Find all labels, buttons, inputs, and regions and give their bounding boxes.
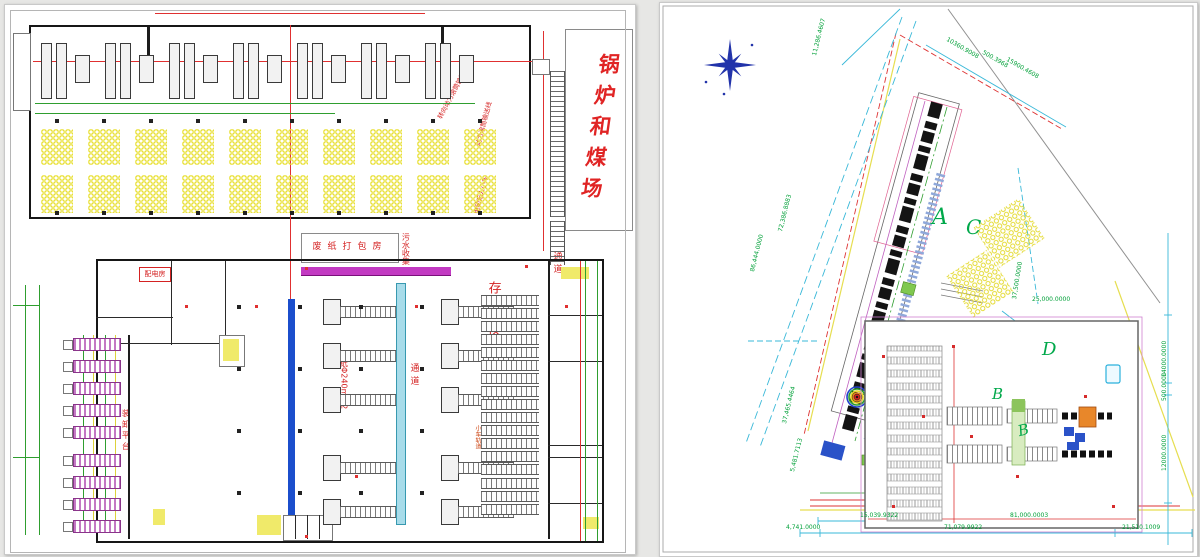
machine-bar: [297, 43, 308, 99]
paper-roll-block: [370, 175, 402, 213]
dock-bay: [73, 476, 121, 489]
dim-line: [580, 261, 581, 541]
column-dot: [298, 305, 302, 309]
red-marker: [565, 305, 568, 308]
machine-unit: [441, 455, 459, 481]
room-wall: [548, 445, 602, 446]
dim-bottom-4: 71,079.9922: [944, 525, 982, 531]
column-dot: [196, 119, 200, 123]
paper-roll-block: [370, 129, 402, 165]
dock-bay: [73, 498, 121, 511]
column-dot: [298, 367, 302, 371]
storage-track: [481, 491, 539, 502]
room-highlight: [153, 509, 165, 525]
storage-track: [481, 464, 539, 475]
storage-track: [481, 347, 539, 358]
column-dot: [237, 429, 241, 433]
machine-bar: [331, 55, 346, 83]
column-dot: [290, 119, 294, 123]
top-dim-line: [155, 13, 425, 14]
dock-leveler: [63, 384, 73, 394]
dim-line: [597, 261, 598, 541]
paper-roll-block: [276, 129, 308, 165]
storage-track: [481, 360, 539, 371]
dim-right-4: 500.0000: [1162, 372, 1168, 401]
paper-roll-block: [182, 129, 214, 165]
machine-bar: [203, 55, 218, 83]
red-marker: [525, 265, 528, 268]
dock-leveler: [63, 340, 73, 350]
machine-unit: [323, 299, 341, 325]
column-dot: [420, 305, 424, 309]
conveyor-turn: [532, 59, 550, 75]
column-dot: [243, 211, 247, 215]
site-line: [39, 285, 40, 535]
paper-roll-block: [41, 175, 73, 213]
conveyor-tail: [340, 306, 396, 318]
red-marker: [355, 475, 358, 478]
machine-bar: [459, 55, 474, 83]
column-dot: [196, 211, 200, 215]
paper-roll-block: [88, 175, 120, 213]
machine-bar: [440, 43, 451, 99]
red-marker: [255, 305, 258, 308]
red-marker: [305, 267, 308, 270]
column-dot: [243, 119, 247, 123]
paper-roll-block: [464, 129, 496, 165]
machine-unit: [441, 343, 459, 369]
conveyor-tail: [340, 394, 396, 406]
chain-conveyor: [288, 299, 295, 527]
machine-bar: [361, 43, 372, 99]
dock-leveler: [63, 362, 73, 372]
room-wall: [548, 457, 602, 458]
dock-bay: [73, 454, 121, 467]
column-dot: [102, 119, 106, 123]
machine-unit: [323, 343, 341, 369]
machine-bar: [425, 43, 436, 99]
storage-track: [481, 373, 539, 384]
dock-bay: [73, 520, 121, 533]
red-marker: [185, 305, 188, 308]
storage-track: [481, 334, 539, 345]
dock-bay: [73, 382, 121, 395]
column-dot: [102, 211, 106, 215]
machine-bar: [395, 55, 410, 83]
paper-roll-block: [276, 175, 308, 213]
machine-bar: [267, 55, 282, 83]
machine-bar: [376, 43, 387, 99]
machine-bar: [120, 43, 131, 99]
machine-bar: [248, 43, 259, 99]
region-label-d: D: [1042, 341, 1056, 359]
column-dot: [55, 211, 59, 215]
paper-roll-block: [135, 175, 167, 213]
storage-track: [481, 295, 539, 306]
storage-track: [481, 308, 539, 319]
room-wall: [548, 361, 602, 362]
red-marker: [305, 535, 308, 538]
dim-right-5: 12000.0000: [1162, 435, 1168, 471]
region-label-a: A: [932, 207, 948, 229]
dock-leveler: [63, 478, 73, 488]
dock-bay: [73, 404, 121, 417]
dock-bay: [73, 426, 121, 439]
stair-fill: [223, 339, 239, 361]
column-dot: [237, 367, 241, 371]
rewinder-machine: [1079, 407, 1096, 427]
site-plan-canvas: [660, 3, 1197, 556]
region-label-b: B: [992, 387, 1003, 402]
machine-bar: [56, 43, 67, 99]
column-dot: [237, 491, 241, 495]
machine-bar: [169, 43, 180, 99]
annex-wall: [225, 261, 226, 345]
storage-track: [481, 451, 539, 462]
machine-bar: [184, 43, 195, 99]
room-highlight: [257, 515, 281, 535]
storage-track: [481, 438, 539, 449]
column-dot: [298, 429, 302, 433]
region-label-c: C: [966, 217, 981, 237]
storage-track: [481, 412, 539, 423]
column-dot: [359, 367, 363, 371]
column-dot: [431, 119, 435, 123]
column-dot: [149, 119, 153, 123]
conveyor-tail: [340, 350, 396, 362]
paper-roll-block: [323, 175, 355, 213]
column-dot: [420, 367, 424, 371]
dock-bay: [73, 360, 121, 373]
dim-bottom-1: 15,039.9322: [860, 513, 898, 519]
dim-right-2: 25,000.0000: [1032, 297, 1070, 303]
transfer-bar: [301, 267, 451, 276]
machine-bar: [139, 55, 154, 83]
dock-leveler: [63, 456, 73, 466]
paper-roll-block: [323, 129, 355, 165]
column-dot: [359, 429, 363, 433]
column-dot: [384, 119, 388, 123]
column-dot: [290, 211, 294, 215]
column-dot: [149, 211, 153, 215]
machine-unit: [441, 299, 459, 325]
paper-roll-block: [417, 129, 449, 165]
toilet-wall: [295, 515, 296, 539]
column-dot: [298, 491, 302, 495]
site-plan-sheet: A C D B B 10360.9008 500.3968 15900.4608…: [659, 2, 1198, 557]
north-compass-icon: [704, 39, 756, 95]
region-c-hatch: [946, 198, 1044, 318]
green-line: [35, 113, 335, 114]
column-dot: [420, 429, 424, 433]
green-line: [35, 103, 475, 104]
storage-track: [481, 386, 539, 397]
column-dot: [337, 119, 341, 123]
toilet-wall: [319, 515, 320, 539]
factory-plan-sheet: 锅炉和煤场 废纸打包房 污水收集 转向动力滚筒输送线 动力滚筒输送线 电动无人小…: [4, 4, 636, 555]
paper-roll-block: [229, 175, 261, 213]
column-dot: [337, 211, 341, 215]
column-dot: [431, 211, 435, 215]
machine-bar: [312, 43, 323, 99]
dock-leveler: [63, 428, 73, 438]
site-tick: [13, 457, 39, 458]
site-line: [25, 285, 26, 535]
finishing-building: [861, 317, 1142, 532]
paper-roll-block: [88, 129, 120, 165]
dim-bottom-5: 21,510.1009: [1122, 525, 1160, 531]
cad-workspace: { "left_drawing": { "boiler_coal_yard_la…: [0, 0, 1200, 557]
pulper-block: [820, 440, 845, 460]
dock-leveler: [63, 522, 73, 532]
belt-conveyor: [396, 283, 406, 525]
room-wall: [548, 315, 602, 316]
machine-bar: [233, 43, 244, 99]
column-dot: [478, 211, 482, 215]
annex-wall: [96, 317, 173, 318]
storage-track: [481, 399, 539, 410]
storage-track: [481, 478, 539, 489]
paper-roll-block: [182, 175, 214, 213]
column-dot: [420, 491, 424, 495]
storage-track: [481, 321, 539, 332]
paper-roll-block: [41, 129, 73, 165]
site-tick: [13, 305, 39, 306]
dock-leveler: [63, 500, 73, 510]
cyan-equipment: [1106, 365, 1120, 383]
column-dot: [478, 119, 482, 123]
column-dot: [359, 491, 363, 495]
column-dot: [359, 305, 363, 309]
machine-unit: [323, 387, 341, 413]
paper-roll-block: [229, 129, 261, 165]
column-dot: [55, 119, 59, 123]
left-annex: [13, 33, 31, 111]
dim-bottom-2: 81,000.0003: [1010, 513, 1048, 519]
conveyor-tail: [340, 506, 396, 518]
annex-wall: [171, 261, 172, 345]
machine-bar: [105, 43, 116, 99]
dock-leveler: [63, 406, 73, 416]
paper-roll-block: [464, 175, 496, 213]
column-dot: [237, 305, 241, 309]
track-block: [887, 346, 942, 521]
inner-wall: [128, 335, 130, 539]
machine-bar: [41, 43, 52, 99]
machine-unit: [441, 387, 459, 413]
red-marker: [415, 305, 418, 308]
machine-unit: [323, 499, 341, 525]
dim-line: [585, 261, 586, 541]
storage-track: [481, 425, 539, 436]
column-dot: [384, 211, 388, 215]
dim-bottom-3: 4,741.0000: [786, 525, 820, 531]
dock-bay: [73, 338, 121, 351]
paper-roll-block: [417, 175, 449, 213]
roller-conveyor: [550, 71, 565, 217]
machine-bar: [75, 55, 90, 83]
machine-unit: [323, 455, 341, 481]
conveyor-tail: [340, 462, 396, 474]
storage-track: [481, 504, 539, 515]
rooms-wall: [548, 261, 550, 539]
paper-roll-block: [135, 129, 167, 165]
machine-unit: [441, 499, 459, 525]
room-wall: [548, 503, 602, 504]
